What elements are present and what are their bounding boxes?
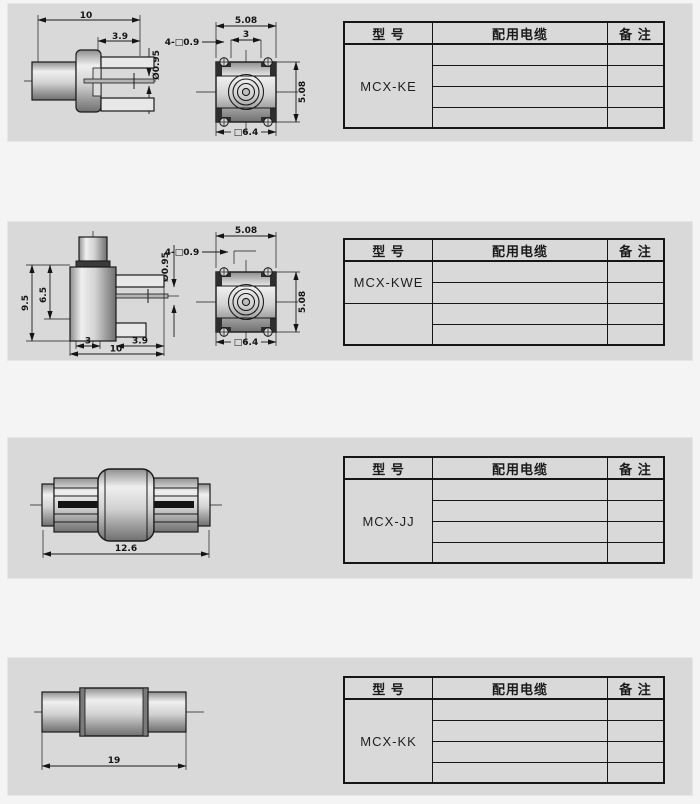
remark-cell (607, 521, 664, 542)
snap-ring (76, 261, 110, 267)
adapter-body (42, 688, 186, 736)
remark-cell (607, 303, 664, 324)
section-mcx-kwe: 9.5 6.5 Ø0.95 (8, 222, 692, 360)
model-cell: MCX-JJ (344, 479, 433, 563)
main-body (70, 267, 116, 341)
table-header-row: 型 号 配用电缆 备 注 (344, 22, 664, 44)
col-header-remark: 备 注 (607, 457, 664, 479)
dim-label: 3.9 (132, 337, 148, 347)
dim-label: 3 (243, 30, 249, 40)
col-header-cable: 配用电缆 (433, 22, 608, 44)
dim-label: 4-□0.9 (165, 38, 199, 48)
spec-table-mcx-kk: 型 号 配用电缆 备 注 MCX-KK (343, 676, 665, 784)
mcx-kk-drawing: 19 (32, 674, 222, 778)
model-cell-empty (344, 303, 433, 345)
top-leg (101, 57, 154, 68)
cable-cell (433, 261, 608, 282)
col-header-remark: 备 注 (607, 22, 664, 44)
right-contact (154, 501, 194, 508)
remark-cell (607, 699, 664, 720)
cable-cell (433, 86, 608, 107)
dim-label: 5.08 (298, 81, 308, 103)
spec-table-mcx-kwe: 型 号 配用电缆 备 注 MCX-KWE (343, 238, 665, 346)
table-row (344, 303, 664, 324)
dim-label: 3.9 (112, 32, 128, 42)
left-contact (58, 501, 98, 508)
cable-cell (433, 720, 608, 741)
cable-cell (433, 542, 608, 563)
top-interface (79, 237, 107, 261)
cable-cell (433, 500, 608, 521)
section-mcx-kk: 19 型 号 配用电缆 备 注 MCX-KK (8, 658, 692, 795)
center-pin (84, 79, 154, 83)
dim-label: 5.08 (235, 16, 257, 26)
cable-cell (433, 741, 608, 762)
dim-label: 19 (108, 756, 121, 766)
dim-label: 10 (110, 345, 123, 355)
table-row: MCX-KK (344, 699, 664, 720)
center-barrel (98, 469, 154, 541)
cable-cell (433, 762, 608, 783)
remark-cell (607, 282, 664, 303)
model-cell: MCX-KWE (344, 261, 433, 303)
dim-label: 3 (85, 337, 91, 347)
remark-cell (607, 479, 664, 500)
top-leg (116, 275, 164, 287)
cable-cell (433, 699, 608, 720)
dim-label: 9.5 (21, 295, 31, 311)
mcx-ke-side-view-drawing: 10 3.9 Ø0.95 (22, 10, 180, 138)
center-cylinder (80, 688, 148, 736)
cable-cell (433, 324, 608, 345)
dim-label: 6.5 (39, 287, 49, 303)
col-header-model: 型 号 (344, 677, 433, 699)
remark-cell (607, 44, 664, 65)
cable-cell (433, 282, 608, 303)
col-header-remark: 备 注 (607, 677, 664, 699)
dim-tab: 3.9 (98, 32, 140, 60)
col-header-model: 型 号 (344, 22, 433, 44)
flange-body (216, 267, 276, 337)
spec-table-mcx-jj: 型 号 配用电缆 备 注 MCX-JJ (343, 456, 665, 564)
dim-label: 5.08 (298, 291, 308, 313)
catalog-page: 10 3.9 Ø0.95 (0, 0, 700, 804)
remark-cell (607, 261, 664, 282)
col-header-cable: 配用电缆 (433, 457, 608, 479)
cable-cell (433, 107, 608, 128)
table-header-row: 型 号 配用电缆 备 注 (344, 457, 664, 479)
model-cell: MCX-KK (344, 699, 433, 783)
col-header-remark: 备 注 (607, 239, 664, 261)
table-row: MCX-KE (344, 44, 664, 65)
remark-cell (607, 86, 664, 107)
remark-cell (607, 324, 664, 345)
remark-cell (607, 542, 664, 563)
cable-cell (433, 65, 608, 86)
bottom-leg (101, 98, 154, 111)
dim-label: 10 (80, 11, 93, 21)
remark-cell (607, 500, 664, 521)
remark-cell (607, 65, 664, 86)
connector-body (70, 231, 168, 345)
right-edge-ring (143, 688, 148, 736)
dim-post-callout: 4-□0.9 (165, 38, 224, 48)
section-mcx-ke: 10 3.9 Ø0.95 (8, 4, 692, 141)
dim-length: 19 (42, 732, 186, 770)
spec-table-mcx-ke: 型 号 配用电缆 备 注 MCX-KE (343, 21, 665, 129)
left-edge-ring (80, 688, 85, 736)
col-header-cable: 配用电缆 (433, 677, 608, 699)
cable-cell (433, 44, 608, 65)
col-header-model: 型 号 (344, 457, 433, 479)
right-tip (198, 484, 210, 526)
dim-post-callout: 4-□0.9 (165, 248, 256, 264)
cable-cell (433, 479, 608, 500)
dim-inner-height: 6.5 (39, 265, 70, 319)
remark-cell (607, 741, 664, 762)
dim-label: 4-□0.9 (165, 248, 199, 258)
table-row: MCX-JJ (344, 479, 664, 500)
table-row: MCX-KWE (344, 261, 664, 282)
table-header-row: 型 号 配用电缆 备 注 (344, 677, 664, 699)
remark-cell (607, 720, 664, 741)
dim-label: □6.4 (234, 128, 258, 138)
remark-cell (607, 107, 664, 128)
right-cylinder (148, 692, 186, 732)
mcx-kwe-front-view-drawing: 5.08 4-□0.9 5.08 □6.4 (158, 218, 338, 350)
mcx-jj-drawing: 12.6 (24, 452, 234, 564)
table-header-row: 型 号 配用电缆 备 注 (344, 239, 664, 261)
mcx-ke-front-view-drawing: 5.08 3 4-□0.9 5.08 (158, 10, 338, 138)
dim-label: 5.08 (235, 226, 257, 236)
col-header-cable: 配用电缆 (433, 239, 608, 261)
adapter-body (42, 469, 210, 541)
dim-label: □6.4 (234, 338, 258, 348)
cable-cell (433, 303, 608, 324)
bottom-leg (116, 323, 146, 337)
left-tip (42, 484, 54, 526)
flange-body (216, 57, 276, 127)
col-header-model: 型 号 (344, 239, 433, 261)
connector-body (24, 50, 154, 112)
dim-label: 12.6 (115, 544, 137, 554)
section-mcx-jj: 12.6 型 号 配用电缆 备 注 MCX-JJ (8, 438, 692, 578)
model-cell: MCX-KE (344, 44, 433, 128)
cable-cell (433, 521, 608, 542)
left-cylinder (42, 692, 80, 732)
barrel (32, 62, 76, 100)
remark-cell (607, 762, 664, 783)
